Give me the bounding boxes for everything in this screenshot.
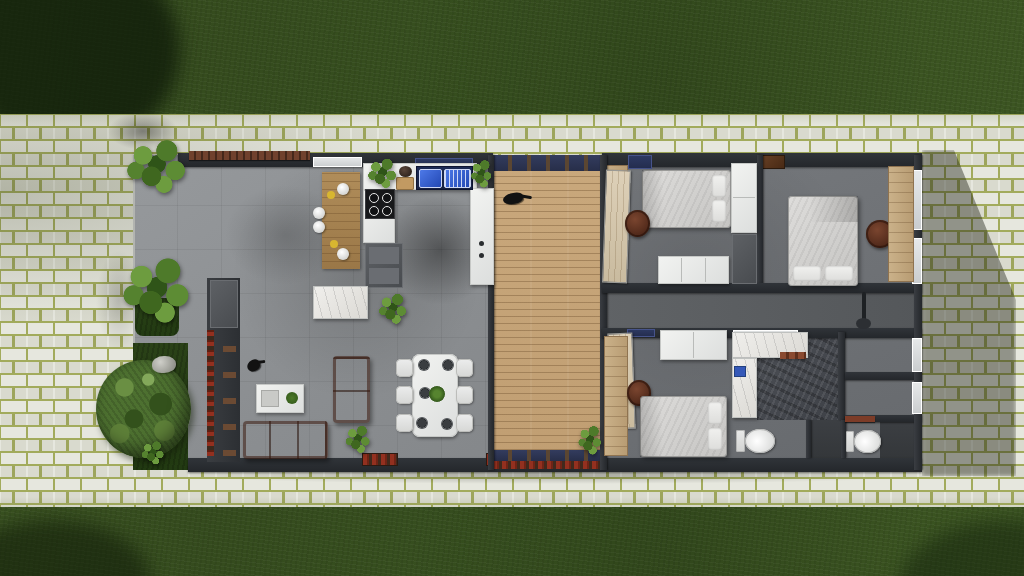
dining-chair-right-2 — [456, 386, 473, 404]
floor-plan-render — [0, 0, 1024, 576]
induction-cooktop — [365, 189, 395, 219]
counter-knob-2 — [479, 253, 484, 258]
front-lawn — [0, 506, 1024, 576]
coffee-table-tray — [261, 390, 279, 407]
bedroom3-duvet-fold — [640, 396, 672, 457]
counter-plant-left — [366, 157, 399, 190]
bedroom1-gray-cabinet — [732, 234, 757, 284]
right-door-frame-1 — [912, 338, 922, 372]
sofa-vertical — [333, 356, 370, 423]
bathroom2-toilet — [846, 429, 882, 454]
island-plant — [377, 292, 409, 326]
bedroom1-dresser — [658, 256, 729, 284]
bathroom2-shower-floor — [810, 420, 845, 458]
bedroom1-navy-box — [628, 155, 652, 169]
garden-screen-planter-box — [210, 280, 238, 328]
bedroom2-duvet-fold — [788, 196, 858, 222]
kitchen-counter-right — [470, 188, 494, 285]
plate-1 — [419, 360, 429, 370]
dining-chair-left-3 — [396, 414, 413, 432]
dining-chair-left-1 — [396, 359, 413, 377]
appliance-front-2 — [369, 268, 399, 284]
plate-2 — [443, 360, 453, 370]
bar-plate-2 — [337, 248, 349, 260]
dining-chair-right-1 — [456, 359, 473, 377]
burner-4 — [382, 206, 392, 216]
kitchen-sink — [416, 166, 473, 190]
hallway-coat-stand-base — [856, 318, 871, 329]
sink-basin-left — [419, 169, 442, 188]
bedroom3-wood-walkway — [604, 336, 628, 456]
plate-5 — [442, 419, 452, 429]
burner-3 — [369, 206, 379, 216]
bedroom1-wardrobe — [731, 163, 757, 233]
bar-window — [313, 157, 362, 167]
lemon-1 — [327, 191, 335, 199]
bedroom2-bed — [788, 196, 858, 286]
garden-screen-red-flowers — [207, 330, 214, 456]
cutting-board — [396, 177, 414, 190]
plate-4 — [417, 418, 427, 428]
wall-bathroom-right — [838, 332, 845, 420]
bedroom3-cabinet — [660, 330, 727, 360]
dark-bowl — [399, 166, 412, 177]
lemon-2 — [330, 240, 338, 248]
toilet2-bowl — [854, 430, 881, 453]
vanity-wood-drawers — [780, 352, 806, 359]
counter-plant-right — [470, 158, 493, 190]
bedroom2-wood-closet — [888, 166, 914, 282]
bar-stool-1 — [313, 207, 325, 219]
bedroom3-cabinet-seam — [693, 332, 694, 358]
bar-plate-1 — [337, 183, 349, 195]
garden-stone — [152, 356, 176, 373]
bedroom3-pillow-2 — [708, 428, 722, 450]
sofa-horizontal — [243, 421, 328, 459]
toilet2-tank — [846, 431, 854, 452]
hallway-top-wall — [602, 283, 922, 293]
dining-chair-left-2 — [396, 386, 413, 404]
grass-bed-shrub — [140, 440, 166, 466]
blue-towel — [734, 366, 746, 377]
bedroom1-bed — [642, 170, 731, 228]
dresser-seam-2 — [705, 258, 706, 282]
bedroom3-pillow-1 — [708, 402, 722, 424]
patio-plant-top-left — [122, 138, 192, 196]
counter-knob-1 — [479, 241, 484, 246]
bedroom3-bed — [640, 396, 727, 457]
bedroom2-pillow-1 — [793, 266, 821, 281]
storage-rooms-divider — [845, 372, 922, 380]
deck-top-rail — [493, 155, 602, 171]
toilet1-tank — [736, 430, 745, 452]
wardrobe-seam — [733, 197, 755, 198]
dresser-seam-1 — [681, 258, 682, 282]
coffee-table-plant — [286, 392, 298, 404]
planter-red-flowers-1 — [363, 454, 397, 465]
coffee-table — [256, 384, 304, 413]
garden-screen-wood-posts — [223, 340, 236, 456]
deck-plant — [577, 424, 603, 457]
pergola-slat-trim — [189, 151, 310, 160]
living-room-plant — [344, 424, 372, 455]
bedroom2-pillow-2 — [825, 266, 853, 281]
wc-divider-wall — [806, 420, 811, 458]
bedroom1-round-chair — [625, 210, 650, 237]
right-door-frame-2 — [912, 382, 922, 414]
bathroom1-toilet — [736, 428, 776, 454]
wall-bedroom1-bedroom2 — [757, 155, 763, 288]
sink-drainboard — [444, 169, 471, 188]
toilet1-bowl — [745, 429, 775, 453]
dining-chair-right-3 — [456, 414, 473, 432]
dining-table-plant — [429, 386, 445, 402]
burner-1 — [369, 193, 379, 203]
bathroom2-shelf — [845, 416, 875, 422]
bedroom1-pillow-1 — [712, 175, 726, 197]
deck-flower-row — [493, 461, 602, 469]
bedroom1-pillow-2 — [712, 200, 726, 222]
bar-stool-2 — [313, 221, 325, 233]
burner-2 — [382, 193, 392, 203]
patio-plant-mid-left — [118, 255, 196, 327]
appliance-column — [365, 243, 403, 288]
appliance-front-1 — [369, 247, 399, 264]
kitchen-island — [313, 286, 368, 319]
